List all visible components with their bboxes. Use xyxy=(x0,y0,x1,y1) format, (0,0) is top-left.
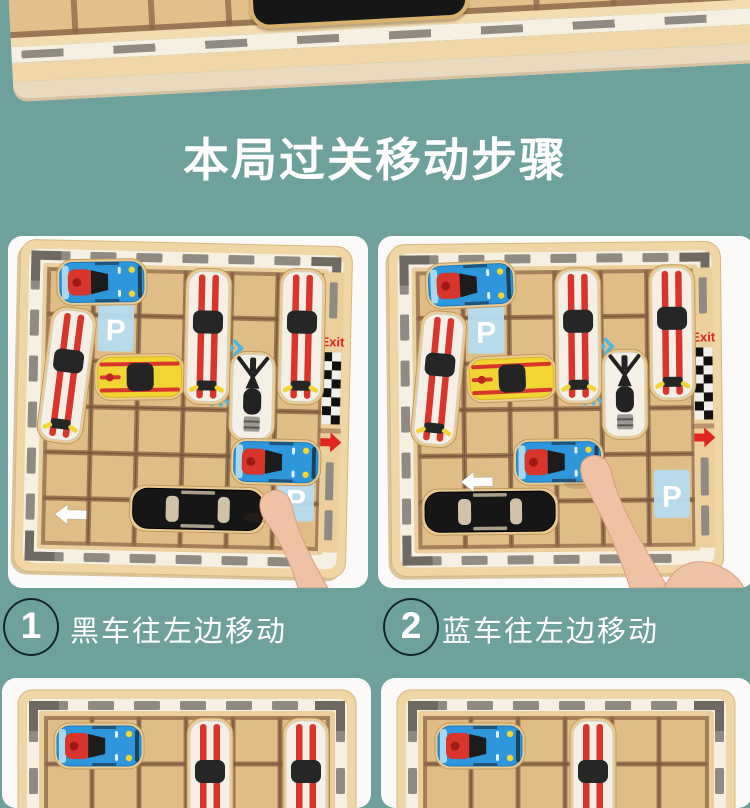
puzzle-board: ExitPP xyxy=(385,241,723,579)
step2-photo: ExitPP xyxy=(378,236,750,588)
parking-mark: P xyxy=(468,306,505,354)
step1-board: ExitPP xyxy=(8,236,368,588)
step3-photo xyxy=(2,678,371,808)
car-piece-yellow-car xyxy=(466,353,558,403)
top-board-photo xyxy=(0,0,750,118)
car-piece-white-striped-car-right xyxy=(277,268,326,405)
step1-text: 黑车往左边移动 xyxy=(70,608,287,650)
car-piece-white-striped-car xyxy=(283,718,329,808)
svg-text:P: P xyxy=(662,481,682,514)
svg-text:P: P xyxy=(476,317,496,350)
car-piece-blue-sport-car-top xyxy=(425,260,517,310)
step2-board: ExitPP xyxy=(378,236,750,588)
car-piece-white-striped-car-right xyxy=(648,265,695,401)
puzzle-board-cropped xyxy=(397,690,735,808)
car-piece-blue-sport-car xyxy=(435,723,525,769)
svg-text:P: P xyxy=(105,314,126,347)
car-piece-white-striped-car xyxy=(187,718,233,808)
top-board xyxy=(9,0,750,102)
page-title: 本局过关移动步骤 xyxy=(0,130,750,190)
car-piece-white-striped-car-middle xyxy=(183,268,232,405)
puzzle-board-cropped xyxy=(18,690,356,808)
parking-mark: P xyxy=(654,470,691,518)
step1-number: 1 xyxy=(3,598,59,656)
car-piece-blue-sport-car-top xyxy=(57,259,148,306)
car-piece-yellow-car xyxy=(94,353,185,400)
puzzle-board: ExitPP xyxy=(10,239,353,582)
step2-text: 蓝车往左边移动 xyxy=(442,608,659,650)
step2-number: 2 xyxy=(383,598,439,656)
step4-photo xyxy=(381,678,750,808)
car-piece-white-striped-car-middle xyxy=(555,268,602,404)
step1-photo: ExitPP xyxy=(8,236,368,588)
car-piece-white-race-car xyxy=(228,351,276,442)
car-piece-black-car xyxy=(129,485,266,534)
car-piece-black-car xyxy=(422,488,558,535)
title-section: 本局过关移动步骤 xyxy=(0,130,750,190)
car-piece-white-race-car xyxy=(601,349,648,439)
car-piece-blue-sport-car xyxy=(54,723,144,769)
parking-mark: P xyxy=(97,303,134,352)
car-piece-blue-sport-car-mid xyxy=(230,438,321,486)
car-piece-white-striped-car xyxy=(570,718,616,808)
